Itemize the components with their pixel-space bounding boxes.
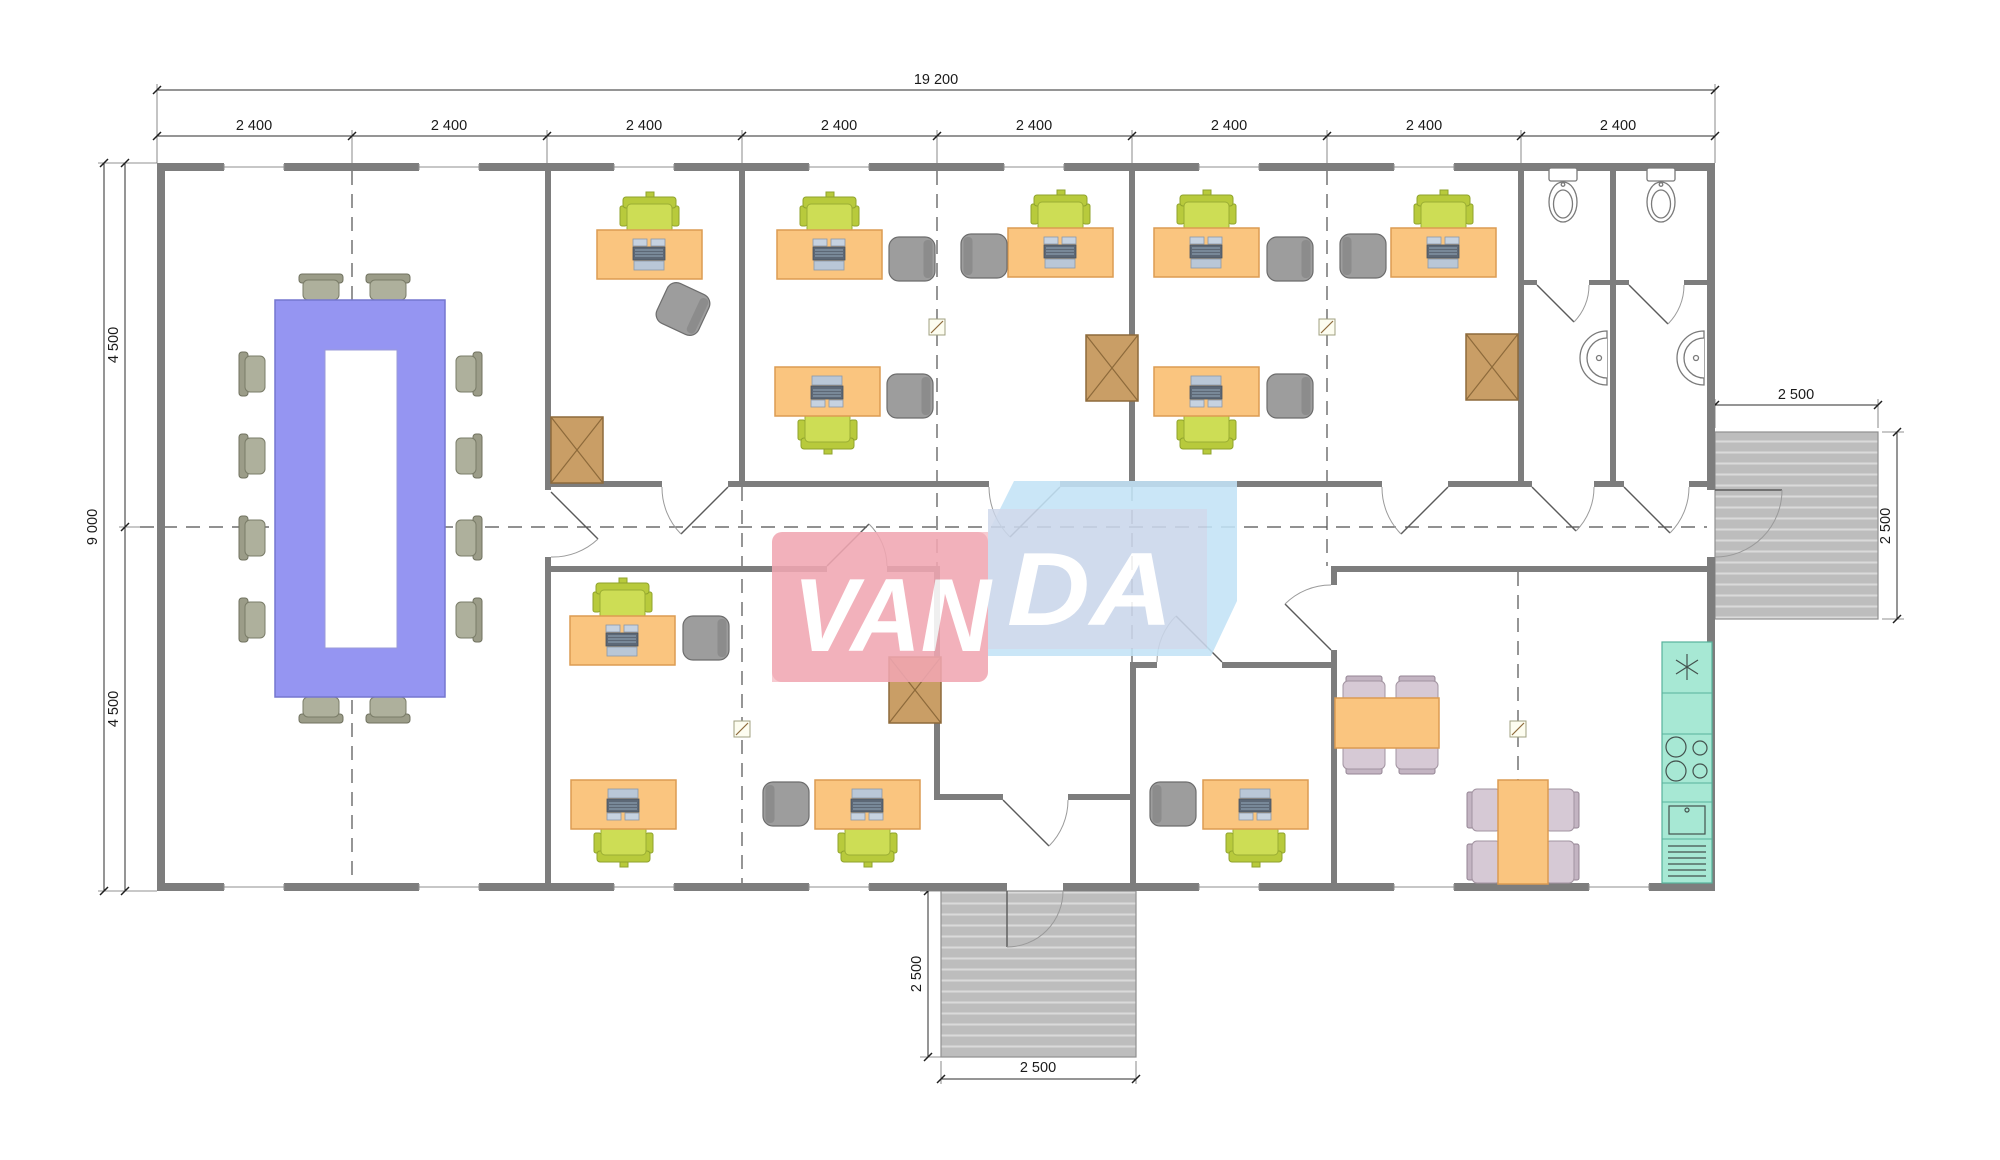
desk-workstation [815, 780, 920, 867]
conference-chair [456, 516, 482, 560]
wall-hall-bottom [1222, 662, 1331, 668]
wall-toilet-partition [1684, 280, 1707, 285]
guest-chair [887, 374, 933, 418]
wall-conference-lower [545, 557, 551, 883]
conference-chair [239, 434, 265, 478]
conference-chair [239, 598, 265, 642]
kitchen-counter [1662, 642, 1712, 883]
conference-table-center [325, 350, 397, 648]
dim-half-height-top: 4 500 [106, 327, 122, 363]
conference-room [239, 274, 482, 723]
guest-chair [1267, 237, 1313, 281]
wall-conference-upper [545, 171, 551, 490]
dim-bay-4: 2 400 [821, 118, 857, 134]
conference-chair [239, 516, 265, 560]
wall-vestibule [1068, 794, 1136, 800]
dim-overall-height: 9 000 [85, 509, 101, 545]
dim-bay-5: 2 400 [1016, 118, 1052, 134]
guest-chair [1150, 782, 1196, 826]
wall-exterior-left [157, 163, 165, 891]
wall-hall-right [1130, 662, 1136, 883]
guest-chair [889, 237, 935, 281]
wall-corridor-top [728, 481, 989, 487]
door-toilet-2-corridor [1624, 487, 1689, 533]
dim-right-porch-depth: 2 500 [1878, 508, 1894, 544]
dim-right-porch-width: 2 500 [1778, 387, 1814, 403]
door-conference [551, 492, 598, 557]
desk-workstation [570, 578, 675, 665]
dining-chair [1467, 789, 1501, 831]
break-room [1335, 642, 1712, 884]
dining-chair [1545, 841, 1579, 883]
guest-chair [653, 279, 713, 338]
guest-chair [1340, 234, 1386, 278]
conference-chair [299, 697, 343, 723]
desk-workstation [775, 367, 880, 454]
wall-toilet-middle [1610, 171, 1616, 481]
wall-office-b-c [1129, 171, 1135, 481]
storage-cabinet [1466, 334, 1518, 400]
door-toilet-2-stall [1629, 285, 1684, 324]
door-toilet-1-stall [1537, 285, 1589, 322]
dim-bottom-porch-width: 2 500 [1020, 1060, 1056, 1076]
dim-bay-6: 2 400 [1211, 118, 1247, 134]
toilets [1549, 168, 1704, 385]
door-toilet-1-corridor [1532, 487, 1594, 531]
desk-workstation [777, 192, 882, 279]
right-porch-deck [1715, 432, 1878, 619]
wall-office-a-b [739, 171, 745, 481]
door-breakroom [1285, 585, 1331, 650]
wall-toilet-partition [1616, 280, 1629, 285]
dim-bay-8: 2 400 [1600, 118, 1636, 134]
dim-bay-3: 2 400 [626, 118, 662, 134]
guest-chair [763, 782, 809, 826]
dining-chair [1545, 789, 1579, 831]
conference-chair [366, 274, 410, 300]
floor-plan-page: 19 200 2 400 2 400 2 400 2 400 2 400 2 4… [0, 0, 2000, 1160]
guest-chair [683, 616, 729, 660]
desk-workstation [1154, 367, 1259, 454]
wall-vestibule [934, 794, 1003, 800]
wall-exterior-right-upper [1707, 163, 1715, 490]
wall-breakroom-stub [1331, 566, 1337, 585]
desk-workstation [597, 192, 702, 279]
conference-chair [299, 274, 343, 300]
guest-chair [961, 234, 1007, 278]
toilet-wc [1549, 168, 1577, 222]
logo-text-da: DA [1007, 532, 1173, 648]
dim-overall-width: 19 200 [914, 72, 958, 88]
conference-chair [456, 598, 482, 642]
vanda-watermark: VAN DA [772, 481, 1237, 682]
storage-cabinet [1086, 335, 1138, 401]
wall-toilet-partition [1524, 280, 1537, 285]
wall-breakroom-left [1331, 650, 1337, 883]
dim-half-height-bottom: 4 500 [106, 691, 122, 727]
wall-breakroom-top [1337, 566, 1707, 572]
toilet-wc [1647, 168, 1675, 222]
entrance-porch-deck [941, 891, 1136, 1057]
wall-hall-bottom [1136, 662, 1157, 668]
wall-toilet-left [1518, 171, 1524, 481]
logo-text-van: VAN [793, 558, 993, 674]
wall-corridor-top [1594, 481, 1624, 487]
desk-workstation [571, 780, 676, 867]
desk-workstation [1154, 190, 1259, 277]
conference-chair [456, 352, 482, 396]
door-vestibule [1003, 800, 1068, 846]
desk-workstation [1008, 190, 1113, 277]
wall-exterior-top [157, 163, 1715, 171]
dining-table [1498, 780, 1548, 884]
conference-chair [456, 434, 482, 478]
dining-table [1335, 698, 1439, 748]
conference-chair [239, 352, 265, 396]
dim-bay-7: 2 400 [1406, 118, 1442, 134]
dim-bay-1: 2 400 [236, 118, 272, 134]
washbasin [1677, 331, 1704, 385]
washbasin [1580, 331, 1607, 385]
floor-plan-canvas: 19 200 2 400 2 400 2 400 2 400 2 400 2 4… [0, 0, 2000, 1160]
conference-chair [366, 697, 410, 723]
wall-toilet-partition [1589, 280, 1610, 285]
storage-cabinet [551, 417, 603, 483]
dining-chair [1467, 841, 1501, 883]
wall-corridor-top [1448, 481, 1532, 487]
dim-bay-2: 2 400 [431, 118, 467, 134]
desk-workstation [1203, 780, 1308, 867]
wall-corridor-top [1689, 481, 1707, 487]
desk-workstation [1391, 190, 1496, 277]
dim-bottom-porch-depth: 2 500 [909, 956, 925, 992]
guest-chair [1267, 374, 1313, 418]
